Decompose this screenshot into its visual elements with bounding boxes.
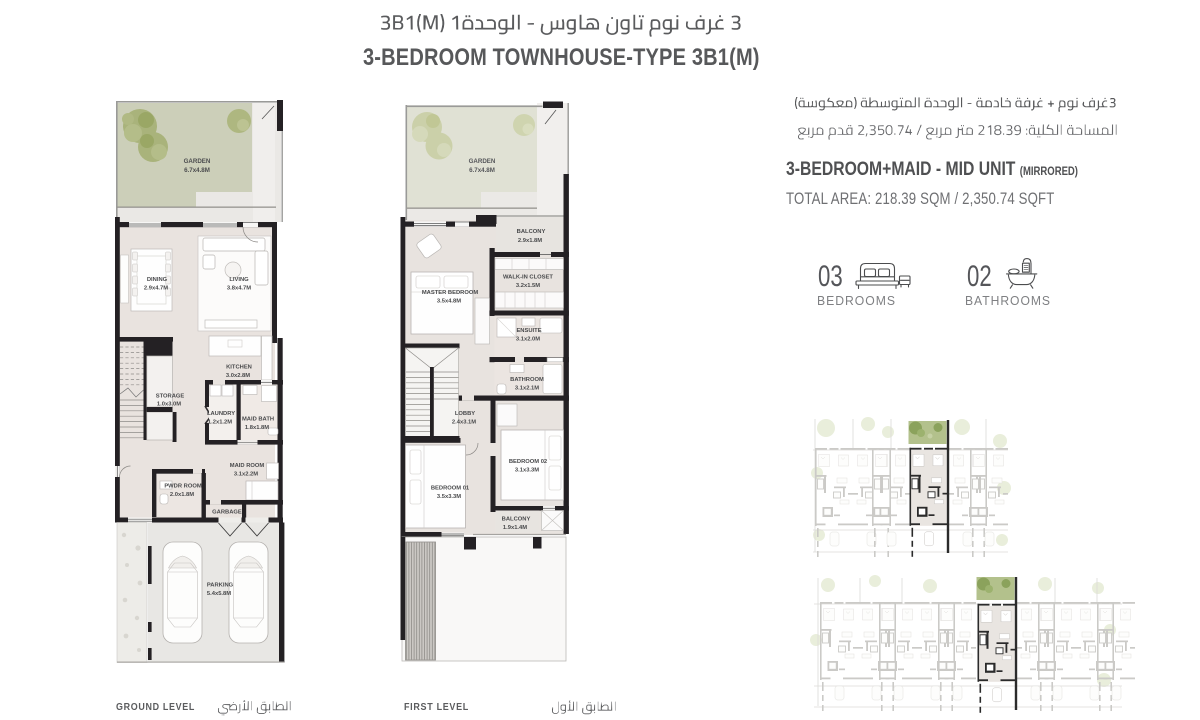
svg-text:3.1x3.3M: 3.1x3.3M bbox=[515, 468, 539, 474]
svg-text:MAID BATH: MAID BATH bbox=[242, 417, 274, 423]
svg-text:3.1x2.2M: 3.1x2.2M bbox=[234, 472, 258, 478]
svg-text:3.1x2.1M: 3.1x2.1M bbox=[515, 386, 539, 392]
svg-text:MASTER BEDROOM: MASTER BEDROOM bbox=[422, 290, 479, 296]
svg-text:ENSUITE: ENSUITE bbox=[516, 328, 541, 334]
svg-text:3.5x4.8M: 3.5x4.8M bbox=[437, 299, 461, 305]
svg-text:LIVING: LIVING bbox=[229, 277, 249, 283]
svg-text:GARBAGE: GARBAGE bbox=[212, 510, 242, 516]
svg-text:DINING: DINING bbox=[147, 277, 168, 283]
svg-text:5.4x5.8M: 5.4x5.8M bbox=[207, 591, 231, 597]
svg-text:2.9x1.8M: 2.9x1.8M bbox=[518, 238, 542, 244]
svg-text:PARKING: PARKING bbox=[207, 583, 234, 589]
svg-text:3.0x2.8M: 3.0x2.8M bbox=[226, 373, 250, 379]
svg-text:6.7x4.8M: 6.7x4.8M bbox=[469, 167, 495, 174]
svg-text:BALCONY: BALCONY bbox=[502, 517, 531, 523]
svg-text:3.2x1.5M: 3.2x1.5M bbox=[516, 283, 540, 289]
svg-text:BEDROOM 01: BEDROOM 01 bbox=[431, 486, 470, 492]
svg-text:WALK-IN CLOSET: WALK-IN CLOSET bbox=[503, 275, 553, 281]
svg-text:3.1x2.0M: 3.1x2.0M bbox=[516, 337, 540, 343]
svg-text:PWDR ROOM: PWDR ROOM bbox=[164, 484, 202, 490]
svg-text:BATHROOM: BATHROOM bbox=[510, 377, 544, 383]
svg-text:6.7x4.8M: 6.7x4.8M bbox=[184, 167, 210, 174]
svg-text:3.5x3.3M: 3.5x3.3M bbox=[437, 494, 461, 500]
svg-text:3.8x4.7M: 3.8x4.7M bbox=[227, 286, 251, 292]
svg-text:KITCHEN: KITCHEN bbox=[226, 365, 252, 371]
svg-text:BEDROOM 02: BEDROOM 02 bbox=[509, 459, 547, 465]
svg-text:MAID ROOM: MAID ROOM bbox=[230, 463, 265, 469]
svg-text:GARDEN: GARDEN bbox=[469, 158, 496, 165]
svg-text:GARDEN: GARDEN bbox=[184, 158, 211, 165]
svg-text:2.4x3.1M: 2.4x3.1M bbox=[452, 420, 476, 426]
svg-text:BALCONY: BALCONY bbox=[517, 229, 546, 235]
svg-text:1.2x1.2M: 1.2x1.2M bbox=[208, 420, 232, 426]
svg-text:2.9x4.7M: 2.9x4.7M bbox=[144, 286, 168, 292]
svg-text:2.0x1.8M: 2.0x1.8M bbox=[170, 492, 194, 498]
svg-text:1.0x3.0M: 1.0x3.0M bbox=[157, 402, 181, 408]
svg-text:LAUNDRY: LAUNDRY bbox=[207, 411, 235, 417]
svg-text:LOBBY: LOBBY bbox=[455, 411, 475, 417]
svg-text:1.9x1.4M: 1.9x1.4M bbox=[503, 525, 527, 531]
svg-text:1.8x1.8M: 1.8x1.8M bbox=[245, 425, 269, 431]
svg-text:STORAGE: STORAGE bbox=[156, 394, 185, 400]
